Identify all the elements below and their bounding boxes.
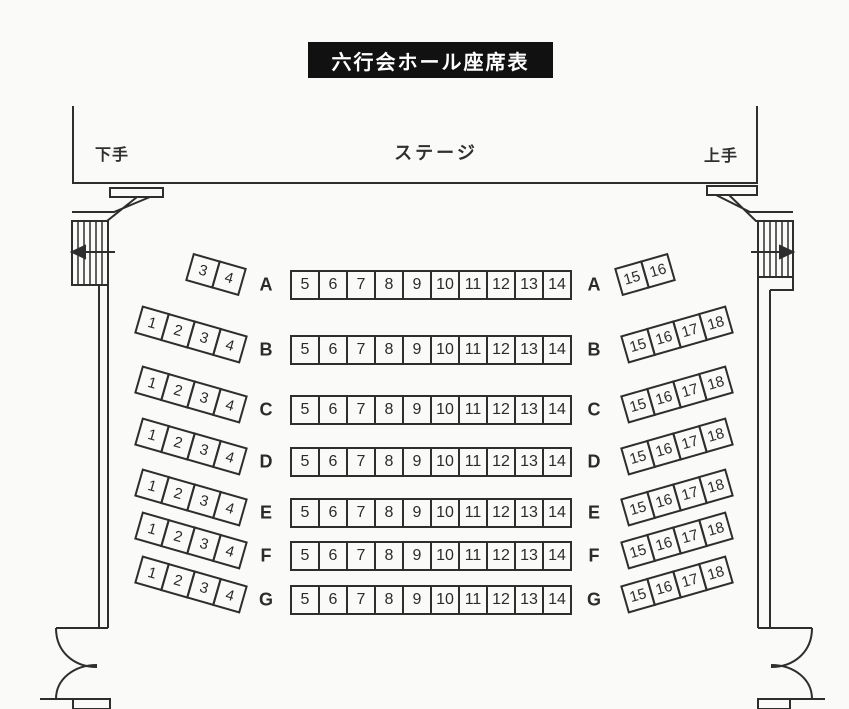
row-B-center-seat-block: 567891011121314 [290,335,572,365]
left-ramp [72,197,150,221]
right-door [771,628,812,699]
row-F-center-seat-block: 567891011121314 [290,541,572,571]
seat-D6: 6 [320,449,348,475]
seat-D8: 8 [376,449,404,475]
stage-label-shimote: 下手 [95,141,129,165]
row-C-center-seat-block: 567891011121314 [290,395,572,425]
seat-A12: 12 [488,272,516,298]
row-D-center-seat-block: 567891011121314 [290,447,572,477]
stage-label: ステージ [394,139,478,165]
seat-E14: 14 [544,500,570,526]
row-letter-left-A: A [260,275,273,296]
row-letter-right-A: A [588,275,601,296]
row-letter-right-G: G [587,590,601,611]
seat-F6: 6 [320,543,348,569]
seat-G8: 8 [376,587,404,613]
seat-C8: 8 [376,397,404,423]
seat-B6: 6 [320,337,348,363]
seat-B12: 12 [488,337,516,363]
seat-F11: 11 [460,543,488,569]
seat-F12: 12 [488,543,516,569]
seat-D12: 12 [488,449,516,475]
seat-B13: 13 [516,337,544,363]
seat-E7: 7 [348,500,376,526]
right-bottom-wall-stub [758,699,790,709]
seating-chart-page: 六行会ホール座席表 下手 ステージ 上手 34A567891011121314A… [0,0,849,709]
row-A-center-seat-block: 567891011121314 [290,270,572,300]
seat-G5: 5 [292,587,320,613]
stage-step-left [110,188,163,197]
seat-C11: 11 [460,397,488,423]
seat-F13: 13 [516,543,544,569]
seat-E6: 6 [320,500,348,526]
seat-C13: 13 [516,397,544,423]
stage-step-right [707,186,757,195]
row-letter-left-G: G [259,590,273,611]
seat-C6: 6 [320,397,348,423]
row-G-center-seat-block: 567891011121314 [290,585,572,615]
seat-C7: 7 [348,397,376,423]
seat-C12: 12 [488,397,516,423]
seat-F14: 14 [544,543,570,569]
seat-F7: 7 [348,543,376,569]
seat-A6: 6 [320,272,348,298]
left-bottom-wall-stub [73,699,110,709]
seat-F9: 9 [404,543,432,569]
seat-E13: 13 [516,500,544,526]
seat-G10: 10 [432,587,460,613]
row-letter-left-B: B [260,340,273,361]
seat-B7: 7 [348,337,376,363]
row-letter-right-E: E [588,503,600,524]
seat-G9: 9 [404,587,432,613]
row-letter-right-C: C [588,400,601,421]
seat-F10: 10 [432,543,460,569]
seat-F8: 8 [376,543,404,569]
seat-G12: 12 [488,587,516,613]
seat-A7: 7 [348,272,376,298]
seat-A5: 5 [292,272,320,298]
seat-E11: 11 [460,500,488,526]
seat-D14: 14 [544,449,570,475]
right-wall [758,277,812,628]
seat-E5: 5 [292,500,320,526]
stage-label-kamite: 上手 [704,142,738,166]
seat-B5: 5 [292,337,320,363]
row-letter-right-B: B [588,340,601,361]
seat-A14: 14 [544,272,570,298]
seat-A11: 11 [460,272,488,298]
seat-D7: 7 [348,449,376,475]
seat-B10: 10 [432,337,460,363]
seat-B14: 14 [544,337,570,363]
seat-E8: 8 [376,500,404,526]
left-door [56,628,97,699]
seat-A10: 10 [432,272,460,298]
row-letter-left-C: C [260,400,273,421]
seat-G14: 14 [544,587,570,613]
seat-E9: 9 [404,500,432,526]
seat-G13: 13 [516,587,544,613]
left-wall [56,285,108,628]
seat-A13: 13 [516,272,544,298]
right-ramp [716,195,793,221]
seat-B11: 11 [460,337,488,363]
row-letter-left-F: F [261,546,272,567]
seat-C10: 10 [432,397,460,423]
seat-E12: 12 [488,500,516,526]
row-letter-left-D: D [260,452,273,473]
seat-D13: 13 [516,449,544,475]
seat-G6: 6 [320,587,348,613]
row-letter-left-E: E [260,503,272,524]
seat-D10: 10 [432,449,460,475]
seat-D9: 9 [404,449,432,475]
seat-D5: 5 [292,449,320,475]
row-letter-right-D: D [588,452,601,473]
seat-C9: 9 [404,397,432,423]
seat-A9: 9 [404,272,432,298]
seat-F5: 5 [292,543,320,569]
seat-C14: 14 [544,397,570,423]
seat-E10: 10 [432,500,460,526]
seat-B8: 8 [376,337,404,363]
row-E-center-seat-block: 567891011121314 [290,498,572,528]
row-letter-right-F: F [589,546,600,567]
seat-D11: 11 [460,449,488,475]
seat-C5: 5 [292,397,320,423]
seat-G7: 7 [348,587,376,613]
seat-B9: 9 [404,337,432,363]
seat-G11: 11 [460,587,488,613]
page-title: 六行会ホール座席表 [308,42,553,78]
seat-A8: 8 [376,272,404,298]
